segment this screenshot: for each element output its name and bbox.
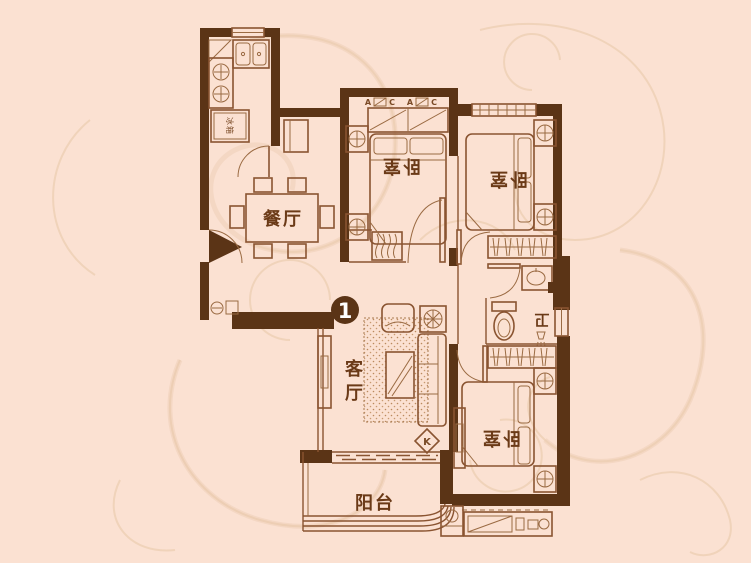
bedroom-right-label: 卧室: [488, 168, 528, 190]
ac-marker: K: [415, 429, 439, 453]
bedroom-bottom-label: 卧室: [481, 427, 521, 449]
sink-icon: [233, 40, 269, 68]
wardrobe-mark-c2: C: [431, 98, 437, 107]
bedroom-bottom-area: 卧室: [454, 346, 556, 536]
floorplan-canvas: 冰箱 餐厅: [0, 0, 751, 563]
bedroom-top-door-icon: [408, 198, 445, 263]
nightstand-lamp-icon: [534, 466, 556, 492]
bedroom-right-window-icon: [472, 104, 536, 116]
bathroom-area: 卫: [486, 266, 560, 346]
bathroom-side-window-icon: [555, 308, 568, 336]
living-label-line2: 厅: [345, 383, 365, 404]
ac-marker-label: K: [423, 437, 432, 448]
kitchen-area: 冰箱: [209, 40, 269, 142]
fridge-label: 冰箱: [225, 117, 235, 135]
wardrobe-top-icon: [368, 108, 448, 132]
nightstand-lamp-icon: [346, 126, 368, 152]
living-label-line1: 客: [345, 358, 365, 380]
wardrobe-mark-a2: A: [407, 98, 414, 107]
bathroom-door-icon: [488, 264, 520, 298]
nightstand-lamp-icon: [534, 204, 556, 230]
bathroom-label: 卫: [534, 311, 549, 329]
duct-shaft-icon: [548, 282, 560, 293]
nightstand-lamp-icon: [534, 368, 556, 394]
bed-top-icon: [370, 134, 446, 244]
balcony-label: 阳台: [355, 492, 395, 514]
bedroom-right-door-icon: [457, 230, 490, 264]
bedroom-top-label: 卧室: [381, 155, 421, 177]
bedroom-bottom-door-icon: [457, 346, 487, 382]
bedroom-right-area: 卧室: [466, 120, 556, 258]
bay-window-dresser-icon: [462, 510, 552, 536]
hanging-wardrobe-icon: [488, 236, 556, 258]
wardrobe-marks: A C A C: [365, 98, 437, 107]
shoe-cabinet-icon: [372, 232, 402, 260]
washbasin-icon: [522, 266, 552, 290]
unit-number-label: 1: [338, 299, 353, 323]
unit-number-badge: 1: [331, 296, 359, 324]
stove-icon: [209, 58, 233, 108]
wardrobe-mark-c1: C: [389, 98, 395, 107]
hanging-wardrobe-icon: [488, 346, 556, 368]
dining-label: 餐厅: [262, 208, 303, 230]
hall-cabinet-icon: [284, 120, 308, 152]
kitchen-door-icon: [238, 146, 269, 177]
toilet-icon: [492, 302, 516, 340]
fridge-icon: 冰箱: [211, 110, 249, 142]
tv-stand-icon: [318, 336, 331, 408]
wardrobe-mark-a1: A: [365, 98, 372, 107]
nightstand-lamp-icon: [534, 120, 556, 146]
living-area: K 1 客 厅: [318, 296, 446, 453]
balcony-sliding-door-icon: [332, 452, 440, 463]
coffee-table-icon: [386, 352, 414, 398]
